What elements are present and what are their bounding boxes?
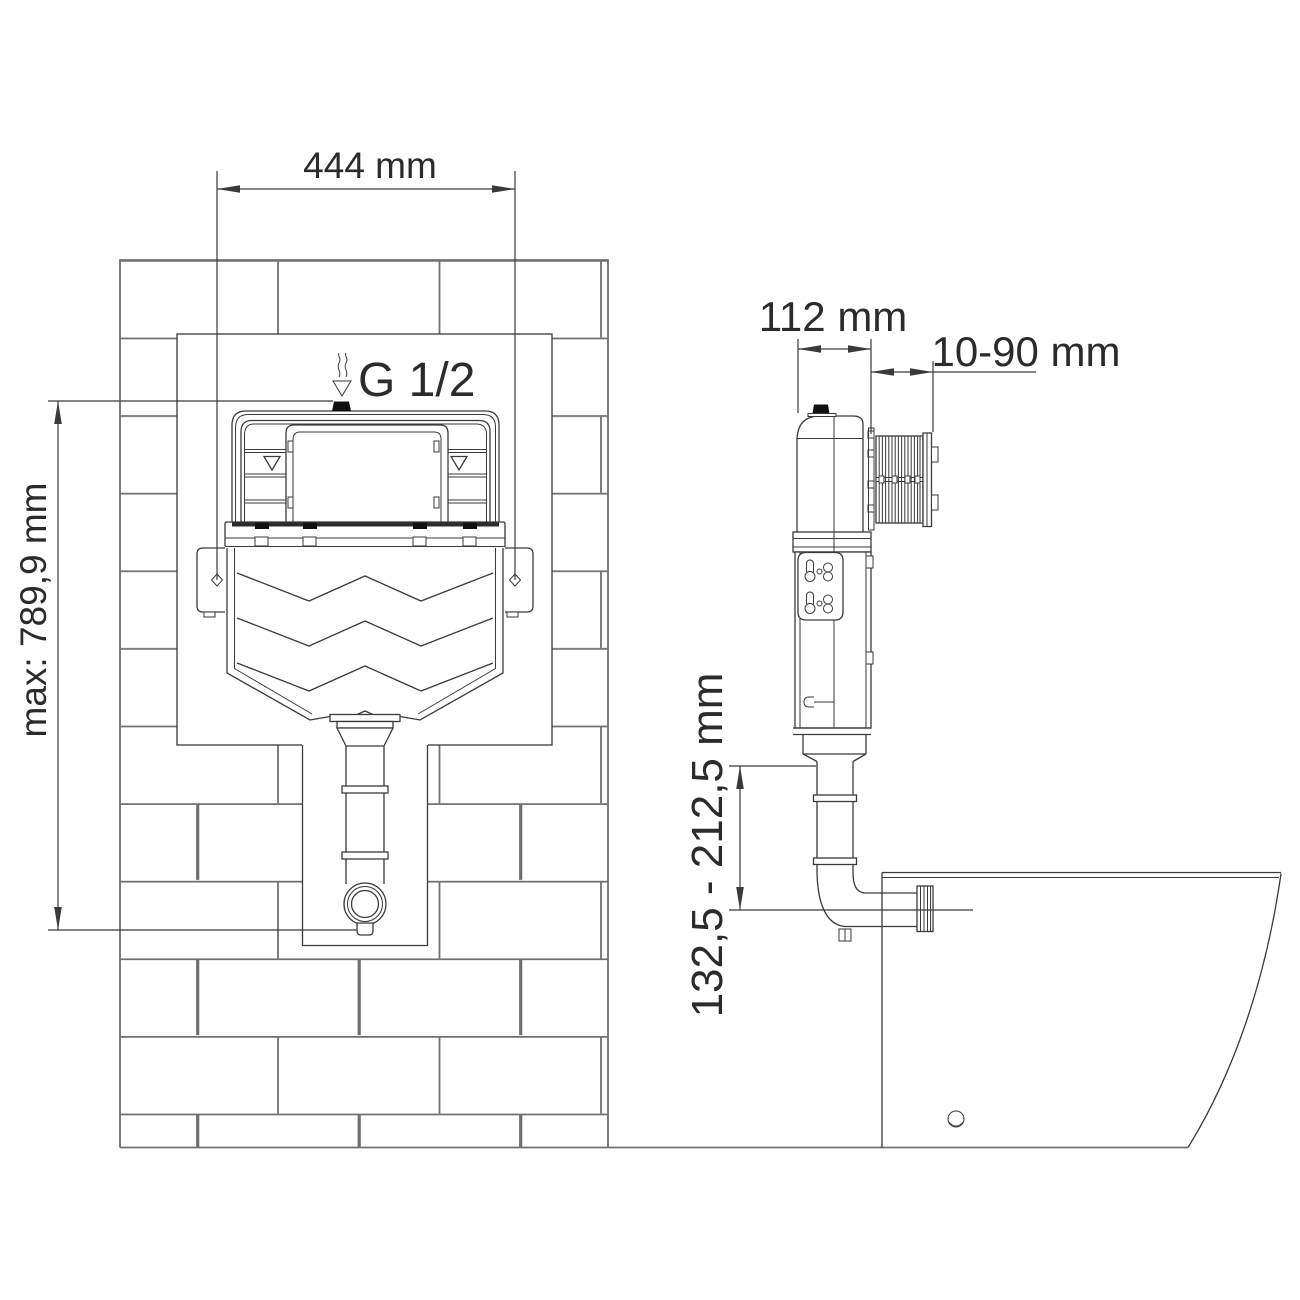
inlet-cap-side [813,405,830,414]
keyhole-mounting-plate [798,553,843,621]
front-height-label: max: 789,9 mm [13,483,54,738]
flush-bend-pipe [814,762,934,942]
outlet-range-label: 132,5 - 212,5 mm [683,673,732,1018]
actuator-plate-edge [923,433,938,527]
cistern-side-view [793,405,938,942]
wall-range-label: 10-90 mm [931,328,1120,375]
dimension-side-depth: 112 mm [759,293,908,434]
dimension-wall-thickness-range: 10-90 mm [871,328,1121,432]
toilet-bowl [882,873,1281,1148]
outlet-coupling [917,886,933,932]
mounting-bracket-right [505,548,533,617]
side-depth-label: 112 mm [759,293,908,340]
fixing-hole [948,1111,964,1127]
inlet-thread-label: G 1/2 [358,354,475,407]
front-width-label: 444 mm [303,145,437,186]
tank-rim [225,522,505,547]
cistern-installation-diagram: 444 mm max: 789,9 mm G 1/2 112 mm 10-90 … [0,0,1300,1300]
mounting-bracket-left [197,548,225,617]
installation-diagram-page: 444 mm max: 789,9 mm G 1/2 112 mm 10-90 … [0,0,1300,1300]
access-panel [286,425,448,522]
water-inlet-cap [332,402,351,412]
extension-sleeve [868,428,938,530]
